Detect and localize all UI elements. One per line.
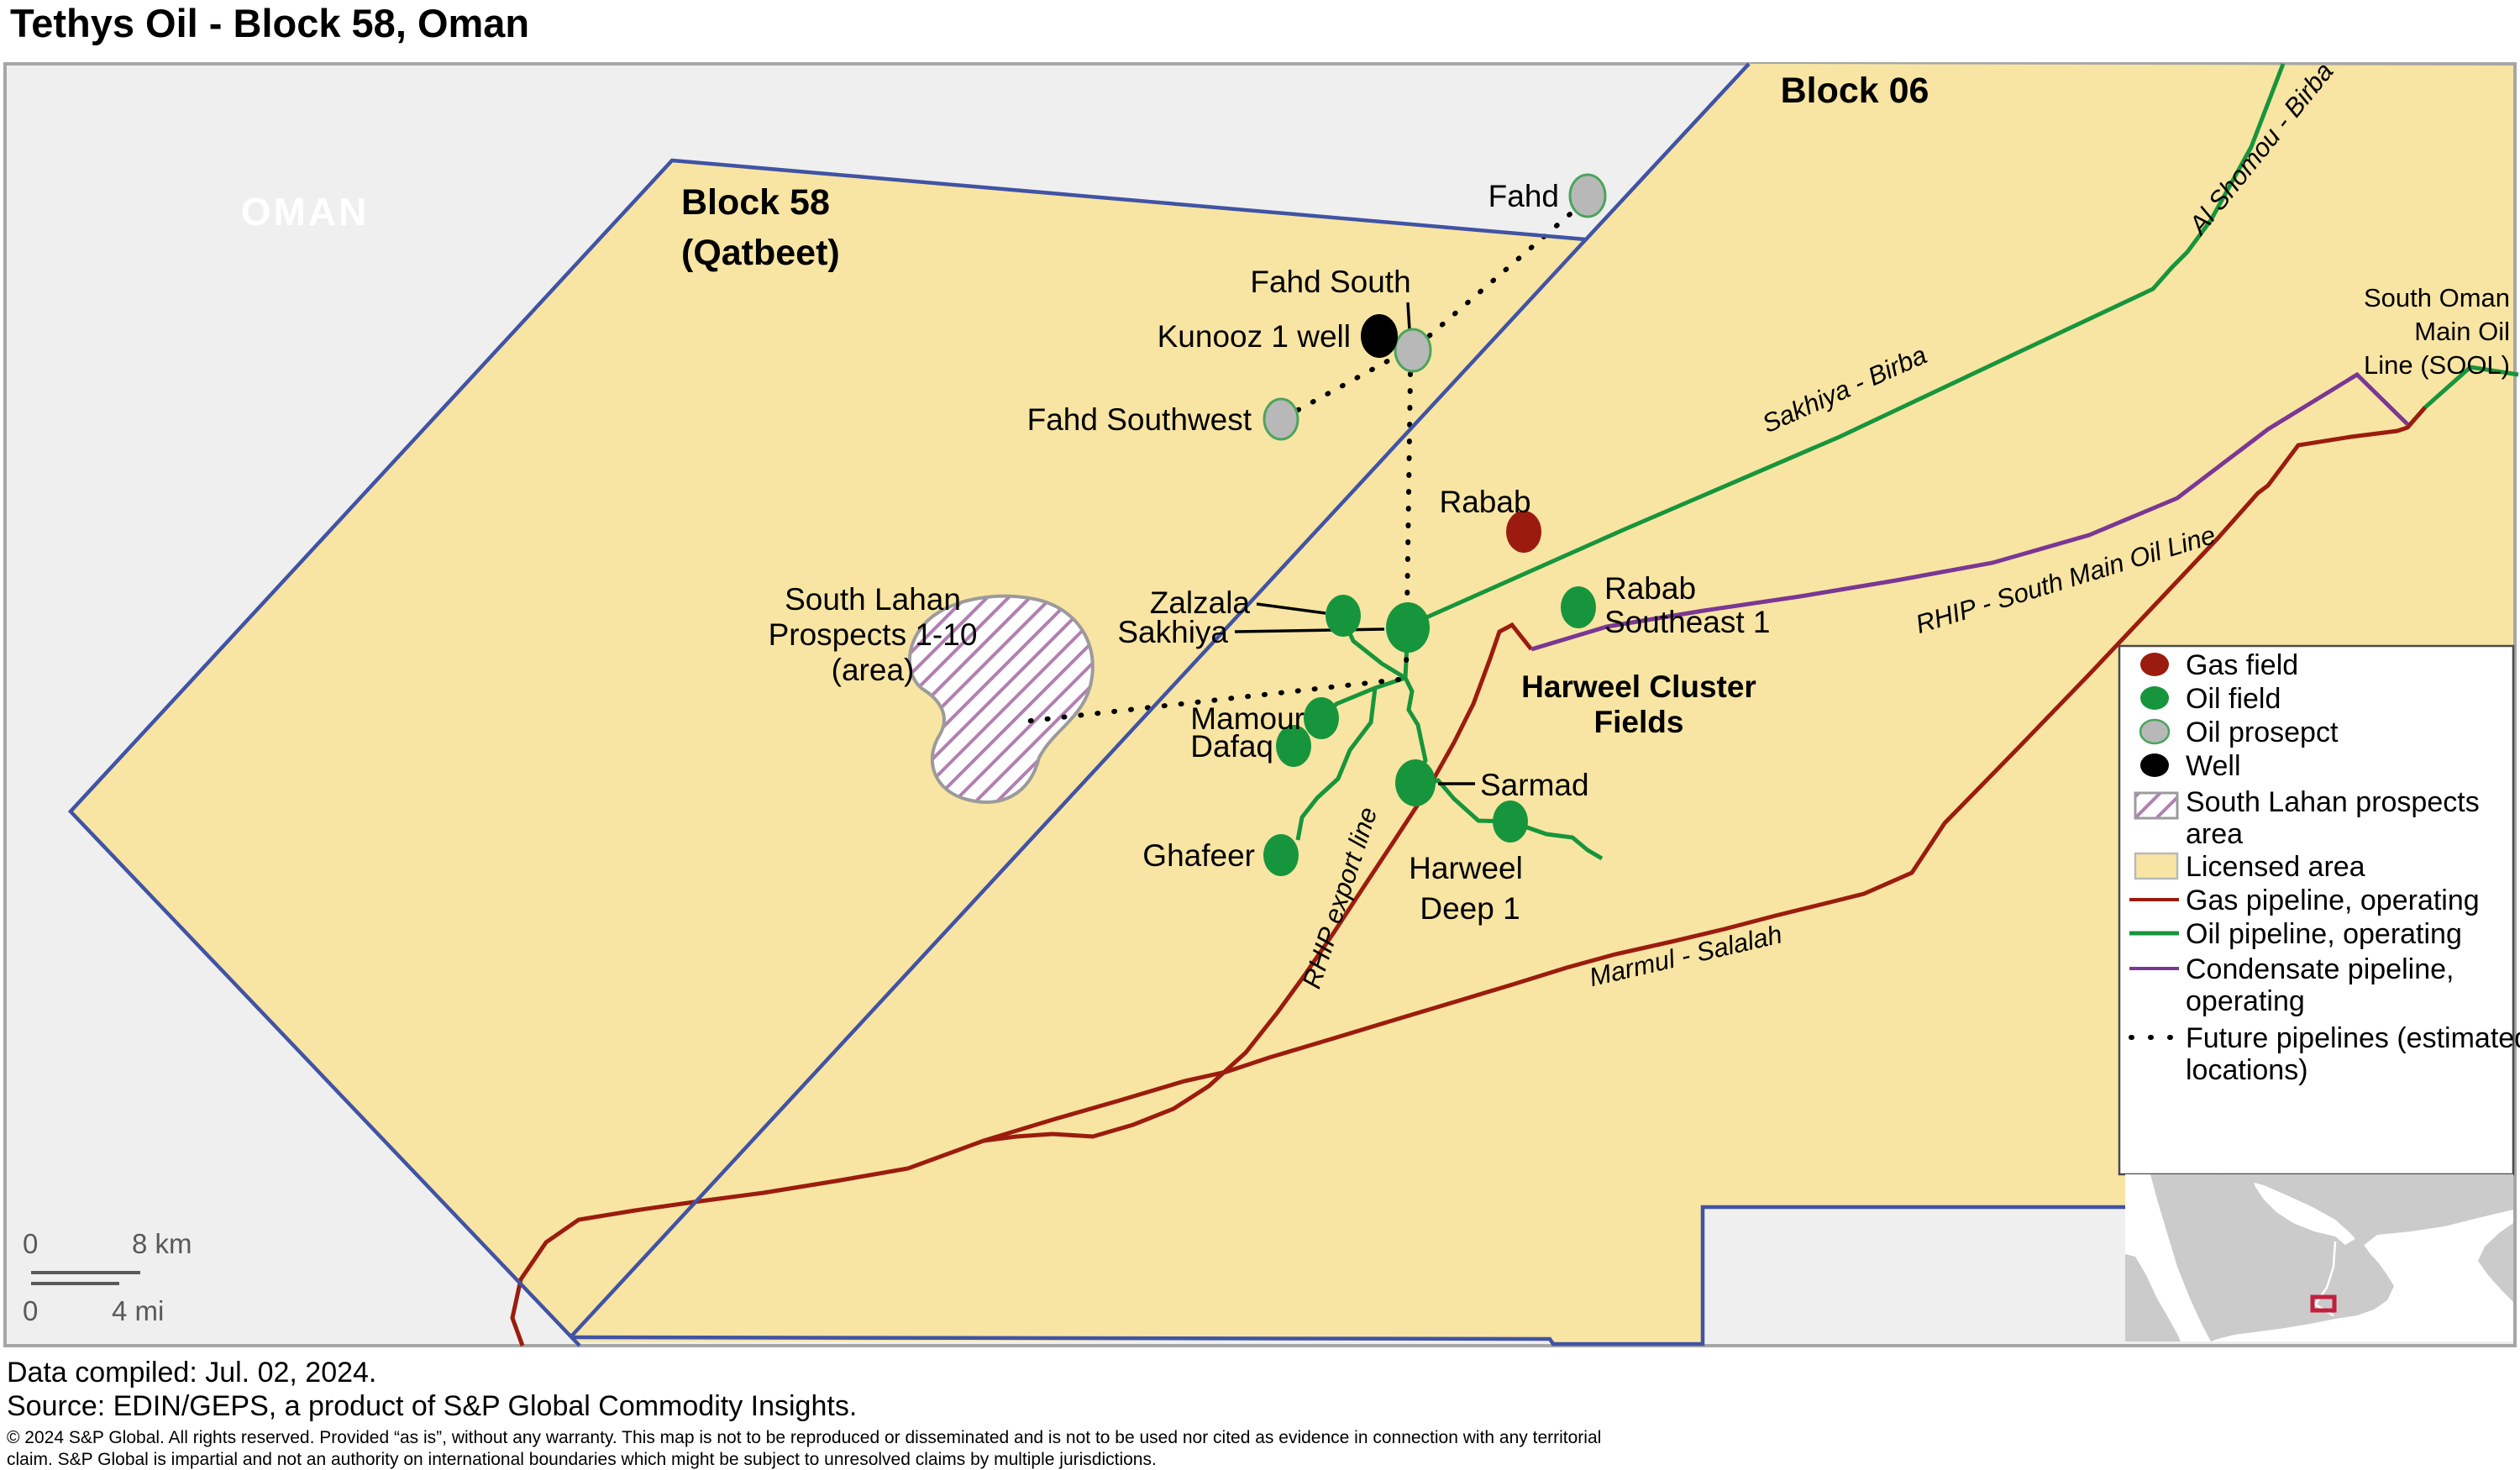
legend-south-lahan-label-line2: area [2186, 818, 2243, 850]
page-title: Tethys Oil - Block 58, Oman [10, 1, 529, 45]
footer-data-compiled: Data compiled: Jul. 02, 2024. [7, 1357, 376, 1389]
field-label-rabab-se1-line1: Rabab [1604, 571, 1696, 606]
map-canvas: OMAN Block 58 (Qatbeet) Block 06 Fahd Fa… [5, 57, 2520, 1346]
label-harweel-cluster-line2: Fields [1594, 705, 1684, 739]
field-label-fahd-south: Fahd South [1250, 265, 1410, 299]
leader-fahd-south [1408, 302, 1410, 330]
field-label-rabab-se1-line2: Southeast 1 [1604, 605, 1770, 639]
legend: Gas field Oil field Oil prosepct Well So… [2119, 646, 2520, 1174]
scale-km-zero: 0 [23, 1228, 38, 1259]
label-harweel-cluster-line1: Harweel Cluster [1521, 669, 1756, 704]
block06-label: Block 06 [1781, 71, 1929, 111]
legend-well-label: Well [2186, 750, 2241, 782]
oil-field-marker-sarmad [1395, 759, 1436, 806]
label-south-lahan-line3: (area) [832, 653, 915, 687]
pipeline-label-sool-line3: Line (SOOL) [2364, 350, 2510, 380]
field-label-fahd-southwest: Fahd Southwest [1027, 402, 1252, 437]
legend-south-lahan-icon [2135, 793, 2177, 818]
legend-gas-pipeline-label: Gas pipeline, operating [2186, 885, 2480, 916]
oil-field-marker-mamour [1304, 697, 1339, 739]
oil-prospect-marker-fahd [1570, 175, 1605, 217]
legend-south-lahan-label-line1: South Lahan prospects [2186, 786, 2480, 818]
map-figure: Tethys Oil - Block 58, Oman [0, 0, 2520, 1470]
pipeline-label-sool-line1: South Oman [2364, 283, 2510, 312]
field-label-sarmad: Sarmad [1480, 768, 1589, 802]
footer-source: Source: EDIN/GEPS, a product of S&P Glob… [7, 1390, 857, 1422]
oil-field-marker-harweel-deep1 [1493, 801, 1528, 843]
legend-oil-prospect-icon [2140, 720, 2169, 743]
block58-label-line1: Block 58 [681, 182, 830, 223]
oil-field-marker-ghafeer [1263, 834, 1299, 876]
field-label-sakhiya: Sakhiya [1117, 615, 1228, 649]
oil-prospect-marker-fahd-south [1395, 329, 1431, 371]
legend-well-icon [2140, 753, 2169, 777]
legend-condensate-label-line2: operating [2186, 985, 2305, 1017]
oil-field-marker-sakhiya [1386, 602, 1430, 653]
legend-oil-field-label: Oil field [2186, 683, 2281, 715]
well-marker-kunooz [1361, 314, 1398, 358]
legend-future-label-line2: locations) [2186, 1054, 2308, 1086]
footer-fineprint-line2: claim. S&P Global is impartial and not a… [7, 1450, 1157, 1469]
legend-gas-field-icon [2140, 653, 2169, 676]
field-label-harweel-deep-line2: Deep 1 [1420, 891, 1520, 926]
oil-field-marker-rabab-se1 [1561, 586, 1596, 628]
legend-oil-pipeline-label: Oil pipeline, operating [2186, 918, 2462, 950]
legend-licensed-area-label: Licensed area [2186, 851, 2365, 883]
field-label-fahd: Fahd [1488, 179, 1559, 213]
field-label-rabab: Rabab [1439, 485, 1530, 519]
legend-future-label-line1: Future pipelines (estimated [2186, 1022, 2520, 1054]
legend-licensed-area-icon [2135, 853, 2177, 879]
label-south-lahan-line2: Prospects 1-10 [769, 617, 978, 652]
legend-gas-field-label: Gas field [2186, 649, 2298, 681]
oil-prospect-marker-fahd-southwest [1264, 399, 1298, 439]
scale-mi-label: 4 mi [112, 1295, 164, 1326]
pipeline-label-sool-line2: Main Oil [2414, 317, 2510, 346]
footer-fineprint-line1: © 2024 S&P Global. All rights reserved. … [7, 1428, 1601, 1447]
legend-oil-field-icon [2140, 686, 2169, 710]
legend-oil-prospect-label: Oil prosepct [2186, 717, 2339, 748]
field-label-ghafeer: Ghafeer [1142, 838, 1255, 873]
scale-mi-zero: 0 [23, 1295, 38, 1326]
field-label-harweel-deep-line1: Harweel [1409, 851, 1523, 885]
label-south-lahan-line1: South Lahan [785, 582, 961, 617]
field-label-dafaq: Dafaq [1190, 729, 1273, 764]
block58-label-line2: (Qatbeet) [681, 233, 840, 273]
oil-field-marker-zalzala [1326, 595, 1361, 637]
scale-km-label: 8 km [132, 1228, 192, 1259]
country-label: OMAN [241, 190, 370, 234]
legend-condensate-label-line1: Condensate pipeline, [2186, 953, 2454, 985]
inset-locator-map [2125, 1174, 2513, 1341]
well-label-kunooz: Kunooz 1 well [1158, 319, 1351, 354]
